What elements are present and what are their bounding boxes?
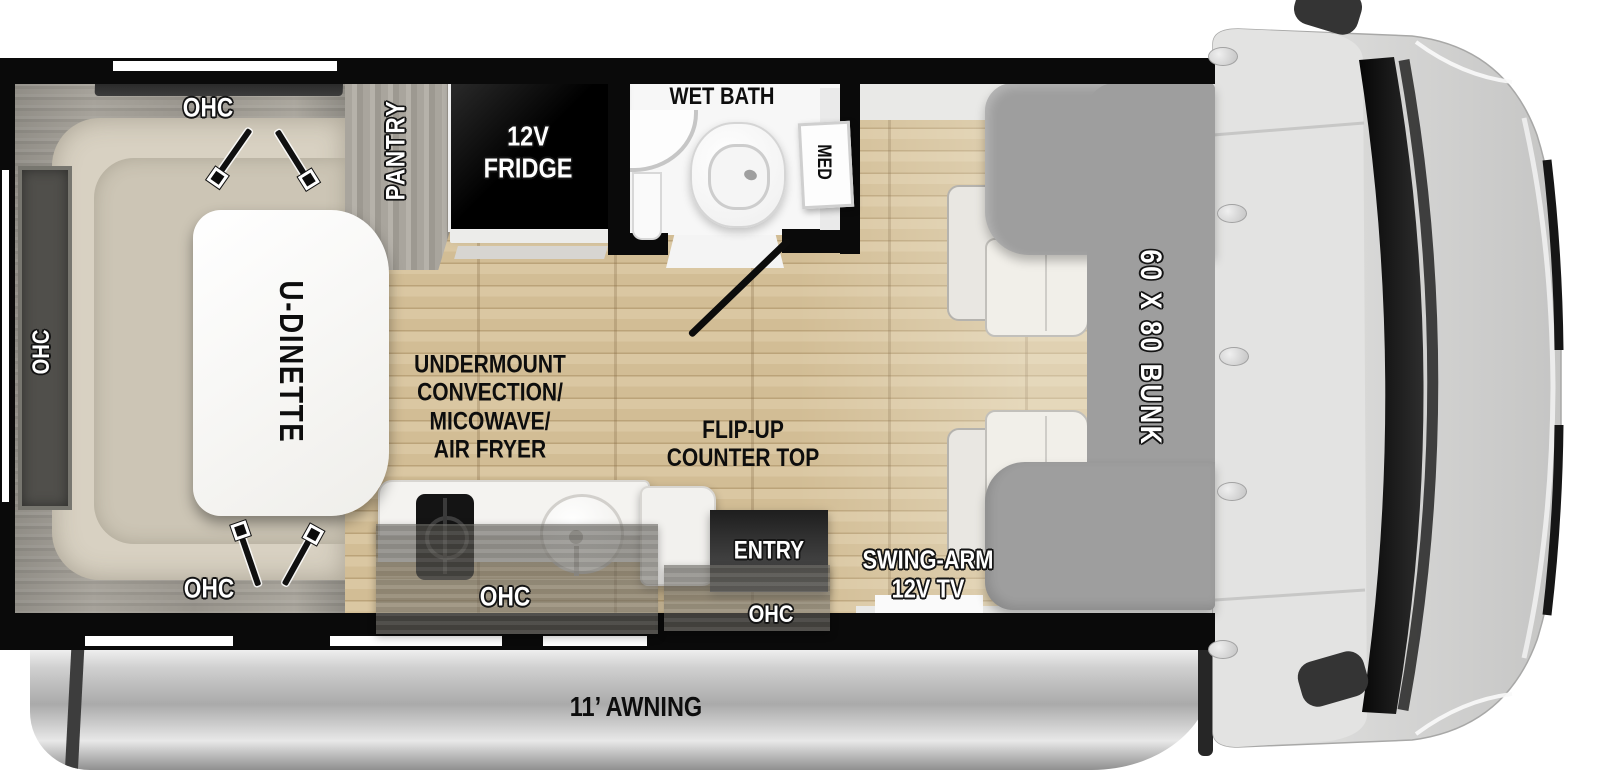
fridge-counter-shelf bbox=[450, 230, 610, 243]
label-ohc-top: OHC bbox=[183, 93, 233, 124]
window-bottom bbox=[330, 636, 502, 646]
rv-floorplan: OHC OHC OHC OHC OHC PANTRY 12V FRIDGE WE… bbox=[0, 0, 1600, 775]
window-left bbox=[2, 170, 9, 502]
marker-clip-icon bbox=[1208, 640, 1238, 659]
shower-pan bbox=[632, 172, 662, 240]
marker-clip-icon bbox=[1208, 47, 1238, 66]
label-u-dinette: U-DINETTE bbox=[272, 281, 310, 444]
label-ohc-entry: OHC bbox=[749, 601, 794, 629]
label-entry: ENTRY bbox=[734, 537, 804, 566]
bunk-bed bbox=[985, 462, 1215, 610]
label-awning: 11’ AWNING bbox=[570, 691, 702, 723]
label-fridge: 12V FRIDGE bbox=[484, 120, 573, 183]
label-pantry: PANTRY bbox=[381, 100, 412, 201]
cab-over-panel bbox=[1213, 29, 1367, 747]
marker-clip-icon bbox=[1219, 347, 1249, 366]
wet-bath-wall-bottom-right bbox=[782, 229, 860, 253]
label-med: MED bbox=[812, 144, 834, 179]
marker-clip-icon bbox=[1217, 204, 1247, 223]
marker-clip-icon bbox=[1217, 482, 1247, 501]
label-undermount: UNDERMOUNT CONVECTION/ MICOWAVE/ AIR FRY… bbox=[414, 351, 566, 464]
fridge-counter-shelf bbox=[454, 246, 608, 259]
toilet-seat bbox=[708, 144, 770, 210]
label-wet-bath: WET BATH bbox=[670, 83, 775, 111]
window-bottom bbox=[85, 636, 233, 646]
label-swing-arm-tv: SWING-ARM 12V TV bbox=[862, 546, 993, 605]
label-ohc-kitchen: OHC bbox=[480, 582, 530, 613]
overhead-cabinet-entry bbox=[664, 565, 830, 631]
wet-bath-wall-left bbox=[608, 58, 630, 255]
label-ohc-bottom: OHC bbox=[184, 574, 234, 605]
label-bunk: 60 X 80 BUNK bbox=[1133, 250, 1167, 447]
label-flip-up-counter: FLIP-UP COUNTER TOP bbox=[667, 416, 819, 473]
window-top bbox=[113, 61, 337, 71]
window-bottom bbox=[543, 636, 647, 646]
label-ohc-left: OHC bbox=[28, 330, 56, 375]
overhead-cabinet-kitchen bbox=[376, 524, 658, 634]
